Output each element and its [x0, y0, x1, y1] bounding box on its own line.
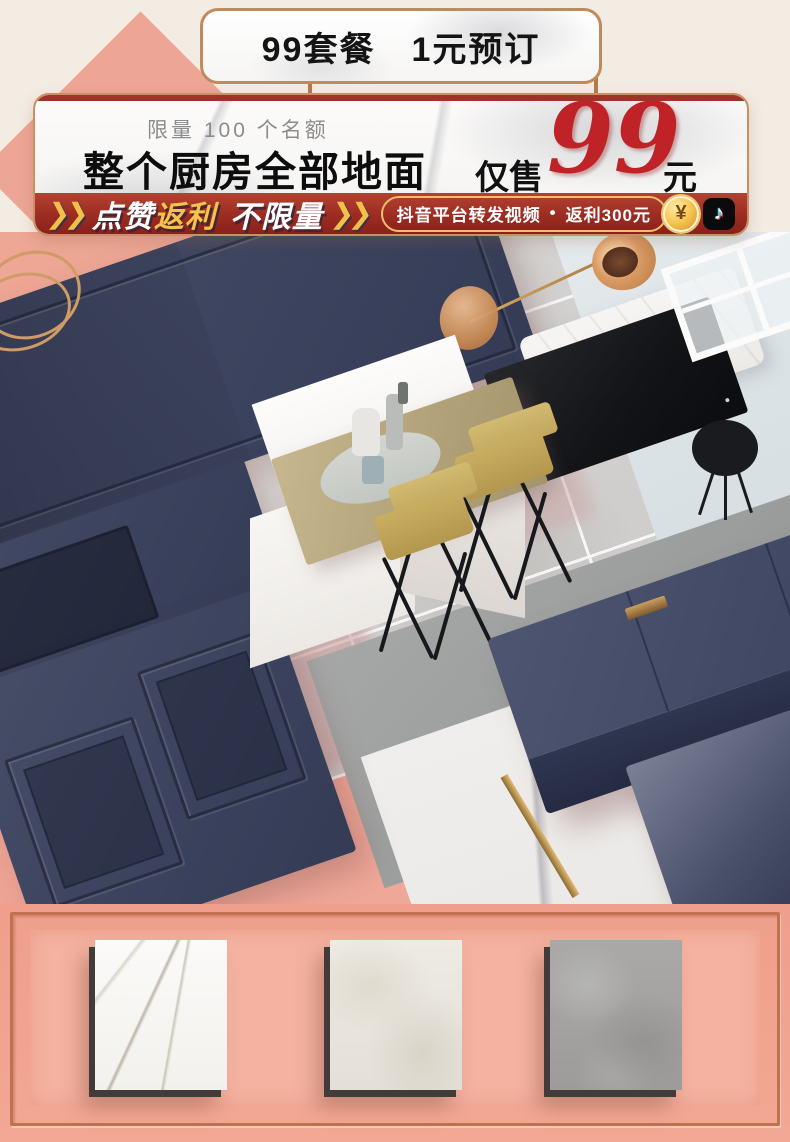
stool-leg — [433, 552, 468, 661]
price-prefix: 仅售 — [475, 150, 543, 199]
console-seam — [765, 543, 790, 664]
cream-marble-tile — [330, 940, 462, 1090]
door-recess — [23, 735, 164, 889]
door-groove — [137, 632, 307, 821]
package-badge: 99套餐 1元预订 — [200, 8, 602, 84]
gray-marble-tile — [550, 940, 682, 1090]
ribbon-slogan: 点赞返利不限量 — [92, 192, 323, 236]
lamp-shade-opening — [599, 243, 642, 281]
vase — [352, 408, 380, 456]
package-badge-label: 99套餐 1元预订 — [262, 22, 541, 71]
wood-handle — [625, 595, 669, 620]
price-unit: 元 — [663, 150, 697, 199]
banner-headline: 整个厨房全部地面 — [83, 138, 427, 198]
slogan-like: 点赞 — [92, 201, 154, 234]
chevron-left-icon: ❯❯ — [45, 200, 86, 228]
promo-banner: 限量 100 个名额 整个厨房全部地面 仅售 99 元 ❯❯ 点赞返利不限量 ❯… — [33, 93, 749, 236]
bar-stool — [372, 474, 502, 684]
slogan-unlimited: 不限量 — [230, 201, 323, 234]
price-value: 99 — [547, 93, 681, 187]
door-recess — [156, 651, 288, 801]
pill-separator-dot: • — [550, 203, 557, 223]
chevron-right-icon: ❯❯ — [329, 200, 370, 228]
pill-text: 抖音平台转发视频 — [397, 201, 541, 226]
side-table-top — [692, 420, 758, 476]
yuan-coin-icon: ¥ — [661, 194, 701, 234]
showroom-scene — [0, 232, 790, 904]
stool-leg — [513, 492, 548, 601]
douyin-rebate-pill: 抖音平台转发视频 • 返利300元 — [381, 196, 667, 232]
slogan-rebate: 返利 — [154, 201, 216, 234]
vase — [398, 382, 408, 404]
pill-rebate: 返利300元 — [566, 201, 651, 226]
tiktok-icon: ♪ — [703, 198, 735, 230]
rebate-ribbon: ❯❯ 点赞返利不限量 ❯❯ 抖音平台转发视频 • 返利300元 ¥ ♪ — [35, 193, 747, 234]
white-marble-tile — [95, 940, 227, 1090]
door-groove — [4, 716, 183, 904]
screw-dot — [725, 398, 730, 403]
stool-leg — [382, 557, 435, 659]
tile-samples-panel — [0, 904, 790, 1142]
window-mullion — [681, 260, 790, 314]
